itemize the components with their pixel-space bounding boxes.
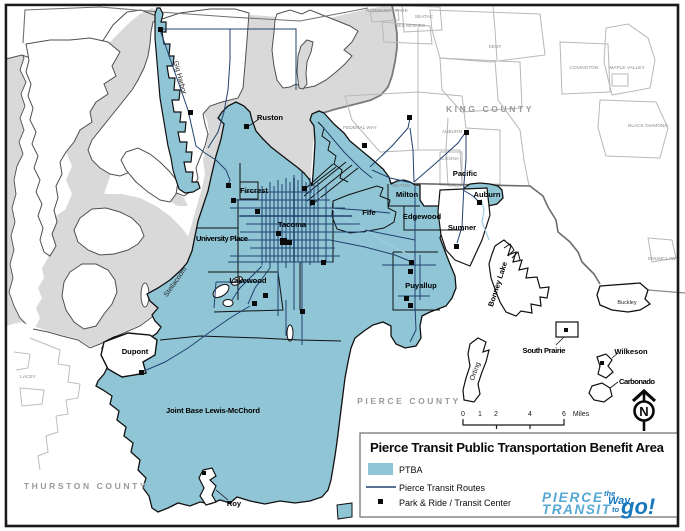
svg-text:PIERCE COUNTY: PIERCE COUNTY (357, 396, 461, 406)
svg-text:Auburn: Auburn (474, 190, 501, 199)
svg-text:DES MOINES: DES MOINES (395, 23, 425, 29)
svg-text:Fircrest: Fircrest (240, 186, 268, 195)
svg-text:1: 1 (478, 411, 482, 418)
svg-text:PTBA: PTBA (399, 465, 423, 475)
svg-text:Lakewood: Lakewood (229, 276, 266, 285)
svg-text:University Place: University Place (196, 234, 248, 243)
svg-text:N: N (639, 404, 648, 419)
svg-text:LACEY: LACEY (20, 374, 37, 380)
svg-text:Pierce Transit Routes: Pierce Transit Routes (399, 483, 486, 493)
svg-text:PACIFIC: PACIFIC (449, 183, 468, 189)
svg-text:4: 4 (528, 411, 532, 418)
svg-text:2: 2 (494, 411, 498, 418)
svg-text:THURSTON COUNTY: THURSTON COUNTY (24, 481, 148, 491)
svg-text:6: 6 (562, 411, 566, 418)
svg-text:Park & Ride / Transit Center: Park & Ride / Transit Center (399, 498, 511, 508)
svg-text:Tacoma: Tacoma (278, 220, 307, 229)
svg-text:Fife: Fife (362, 208, 376, 217)
svg-text:SEATAC: SEATAC (415, 14, 434, 20)
svg-text:Ruston: Ruston (257, 113, 284, 122)
svg-text:NORMANDY PARK: NORMANDY PARK (366, 8, 409, 14)
svg-text:South Prairie: South Prairie (523, 346, 566, 355)
svg-text:Pierce Transit Public Transpor: Pierce Transit Public Transportation Ben… (370, 440, 665, 455)
svg-text:Roy: Roy (227, 499, 242, 508)
svg-text:KING COUNTY: KING COUNTY (446, 104, 534, 114)
svg-text:to: to (612, 505, 619, 514)
svg-text:Puyallup: Puyallup (405, 281, 437, 290)
svg-text:Buckley: Buckley (617, 300, 637, 306)
svg-text:Carbonado: Carbonado (619, 377, 655, 386)
svg-text:Pacific: Pacific (453, 169, 477, 178)
svg-text:ALGONA: ALGONA (439, 156, 460, 162)
svg-text:Edgewood: Edgewood (403, 212, 442, 221)
svg-text:Milton: Milton (396, 190, 419, 199)
svg-text:FEDERAL WAY: FEDERAL WAY (343, 125, 377, 131)
svg-text:KENT: KENT (489, 44, 502, 50)
svg-text:TRANSIT: TRANSIT (542, 502, 612, 517)
svg-text:Sumner: Sumner (448, 223, 476, 232)
svg-text:BLACK DIAMOND: BLACK DIAMOND (628, 123, 668, 129)
svg-text:AUBURN: AUBURN (442, 129, 463, 135)
svg-text:MILTON: MILTON (392, 183, 410, 189)
svg-text:Wilkeson: Wilkeson (614, 347, 648, 356)
svg-text:MAPLE VALLEY: MAPLE VALLEY (609, 65, 645, 71)
svg-text:COVINGTON: COVINGTON (570, 65, 599, 71)
svg-text:go!: go! (620, 494, 655, 519)
svg-text:Joint Base Lewis-McChord: Joint Base Lewis-McChord (166, 406, 260, 415)
svg-text:ENUMCLAW: ENUMCLAW (648, 256, 676, 262)
svg-text:Dupont: Dupont (122, 347, 149, 356)
svg-text:0: 0 (461, 411, 465, 418)
svg-text:Miles: Miles (573, 411, 590, 418)
